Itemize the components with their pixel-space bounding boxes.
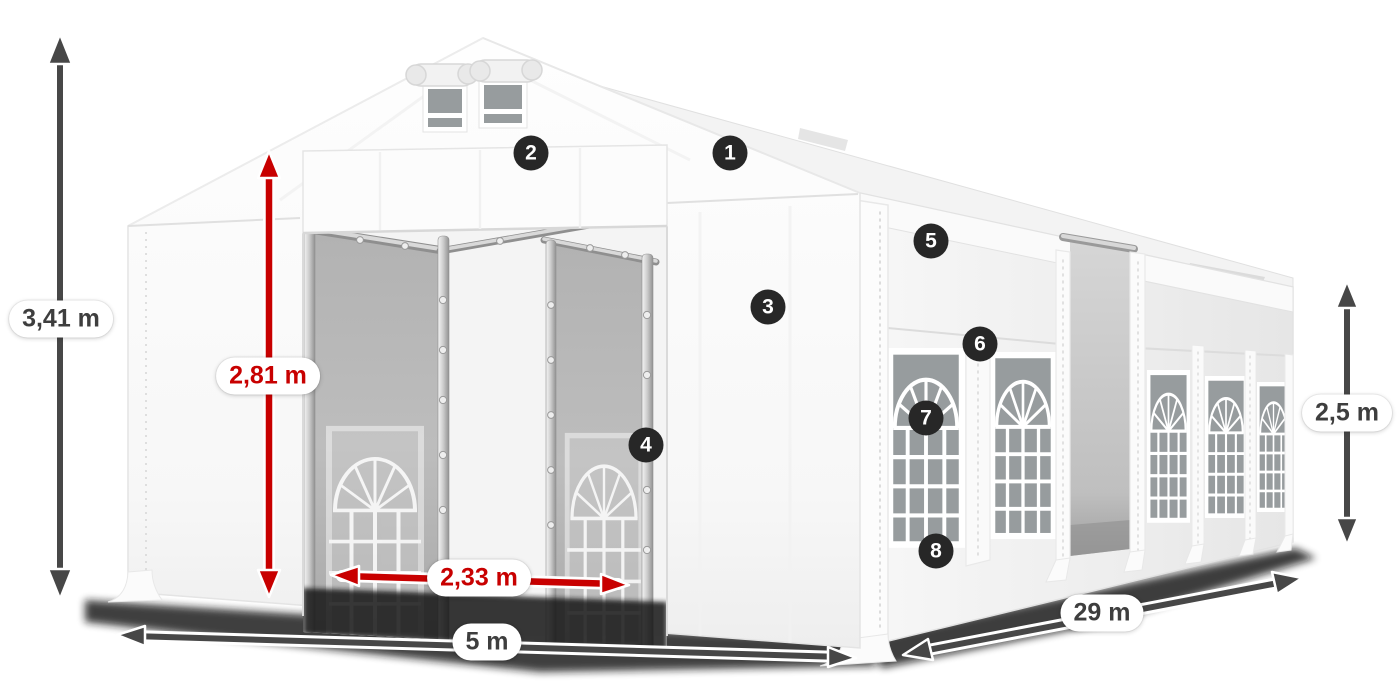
arched-window	[993, 355, 1054, 536]
dimension-label-total-height: 3,41 m	[9, 301, 113, 338]
dimension-label-entrance-height: 2,81 m	[216, 358, 320, 395]
callout-5[interactable]: 5	[914, 224, 949, 259]
arched-window	[1207, 378, 1246, 515]
side-door-opening	[1063, 236, 1134, 556]
callout-7[interactable]: 7	[909, 401, 944, 436]
callout-8[interactable]: 8	[919, 534, 954, 569]
callout-2[interactable]: 2	[514, 136, 549, 171]
arched-window	[1149, 373, 1189, 521]
callout-1[interactable]: 1	[713, 136, 748, 171]
arched-window	[1258, 384, 1288, 510]
entrance-header	[303, 145, 667, 233]
vent-roll	[406, 60, 542, 86]
callout-6[interactable]: 6	[963, 327, 998, 362]
dimension-label-side-length: 29 m	[1061, 595, 1144, 632]
entrance-interior	[300, 210, 670, 684]
tent-dimensions-diagram: 3,41 m 2,81 m 2,33 m 5 m 29 m 2,5 m 1 2 …	[0, 0, 1400, 700]
tent-illustration	[0, 0, 1400, 700]
callout-4[interactable]: 4	[629, 428, 664, 463]
dimension-label-side-wall-height: 2,5 m	[1302, 395, 1392, 432]
arched-window	[890, 351, 962, 544]
callout-3[interactable]: 3	[751, 290, 786, 325]
dimension-label-entrance-width: 2,33 m	[427, 560, 531, 597]
dimension-label-front-width: 5 m	[452, 624, 521, 661]
